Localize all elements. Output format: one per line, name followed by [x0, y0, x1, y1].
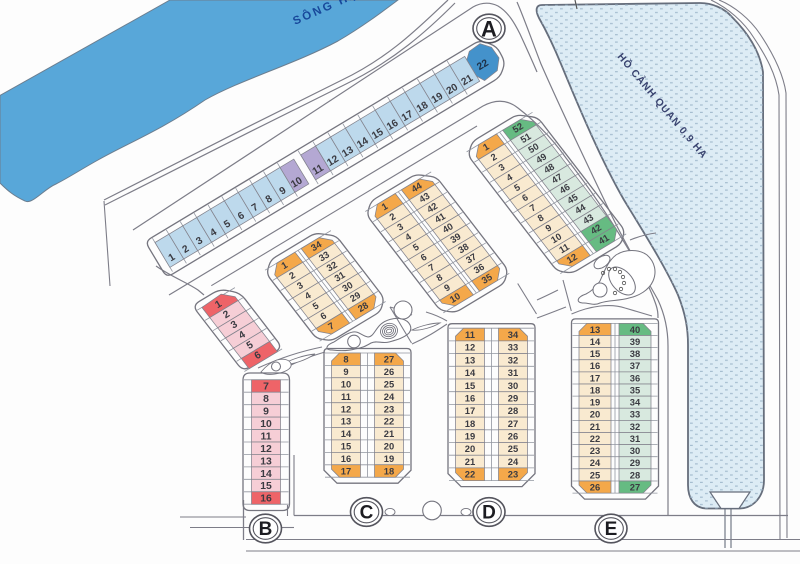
svg-text:29: 29 [630, 457, 640, 468]
svg-text:C: C [360, 503, 374, 524]
svg-text:13: 13 [590, 324, 600, 335]
svg-text:8: 8 [263, 394, 269, 405]
svg-text:26: 26 [384, 366, 394, 377]
svg-text:31: 31 [508, 367, 518, 378]
svg-text:20: 20 [384, 441, 394, 452]
svg-text:18: 18 [465, 418, 475, 429]
svg-text:26: 26 [508, 431, 518, 442]
svg-text:30: 30 [630, 445, 640, 456]
svg-text:27: 27 [384, 354, 394, 365]
svg-text:8: 8 [343, 354, 348, 365]
svg-text:17: 17 [590, 372, 600, 383]
svg-text:39: 39 [630, 336, 640, 347]
svg-text:18: 18 [384, 465, 394, 476]
svg-text:10: 10 [341, 378, 351, 389]
svg-text:13: 13 [465, 354, 475, 365]
svg-text:12: 12 [465, 342, 475, 353]
svg-text:28: 28 [630, 469, 640, 480]
svg-text:38: 38 [630, 348, 640, 359]
svg-text:13: 13 [260, 456, 272, 467]
svg-text:11: 11 [341, 391, 351, 402]
svg-text:17: 17 [465, 405, 475, 416]
svg-text:11: 11 [261, 432, 272, 443]
svg-text:22: 22 [590, 433, 600, 444]
svg-text:22: 22 [465, 469, 475, 480]
svg-text:25: 25 [590, 469, 600, 480]
svg-text:25: 25 [508, 443, 518, 454]
svg-text:40: 40 [630, 324, 640, 335]
svg-text:D: D [482, 503, 496, 524]
svg-text:19: 19 [384, 453, 394, 464]
svg-text:16: 16 [341, 453, 351, 464]
svg-text:16: 16 [465, 392, 475, 403]
svg-text:33: 33 [508, 342, 518, 353]
svg-text:34: 34 [630, 397, 641, 408]
svg-text:21: 21 [590, 421, 600, 432]
svg-text:16: 16 [590, 360, 600, 371]
svg-text:23: 23 [384, 403, 394, 414]
svg-text:16: 16 [260, 494, 272, 505]
svg-text:37: 37 [630, 360, 640, 371]
svg-text:33: 33 [630, 409, 640, 420]
svg-text:14: 14 [590, 336, 601, 347]
svg-text:30: 30 [508, 380, 518, 391]
svg-text:15: 15 [465, 380, 475, 391]
svg-text:12: 12 [341, 403, 351, 414]
svg-text:24: 24 [508, 456, 519, 467]
svg-text:21: 21 [465, 456, 475, 467]
svg-text:E: E [605, 519, 618, 540]
svg-text:14: 14 [260, 469, 272, 480]
svg-text:13: 13 [341, 416, 351, 427]
svg-text:26: 26 [590, 481, 600, 492]
svg-text:15: 15 [590, 348, 600, 359]
svg-text:32: 32 [630, 421, 640, 432]
svg-text:28: 28 [508, 405, 518, 416]
svg-text:24: 24 [590, 457, 601, 468]
svg-text:19: 19 [590, 397, 600, 408]
svg-text:27: 27 [630, 481, 640, 492]
svg-text:22: 22 [384, 416, 394, 427]
svg-text:7: 7 [263, 382, 269, 393]
svg-text:29: 29 [508, 392, 518, 403]
svg-text:10: 10 [260, 419, 272, 430]
svg-text:12: 12 [260, 444, 272, 455]
svg-text:20: 20 [465, 443, 475, 454]
svg-text:23: 23 [590, 445, 600, 456]
svg-text:34: 34 [508, 329, 519, 340]
svg-text:32: 32 [508, 354, 518, 365]
svg-text:36: 36 [630, 372, 640, 383]
svg-text:14: 14 [341, 428, 352, 439]
svg-text:17: 17 [341, 465, 351, 476]
svg-text:A: A [481, 16, 497, 41]
svg-text:35: 35 [630, 385, 640, 396]
svg-text:21: 21 [384, 428, 394, 439]
svg-text:14: 14 [465, 367, 476, 378]
svg-text:25: 25 [384, 378, 394, 389]
svg-text:B: B [259, 519, 273, 540]
svg-text:11: 11 [465, 329, 475, 340]
svg-text:27: 27 [508, 418, 518, 429]
svg-text:24: 24 [384, 391, 395, 402]
svg-text:9: 9 [263, 407, 269, 418]
svg-text:31: 31 [630, 433, 640, 444]
svg-text:23: 23 [508, 469, 518, 480]
svg-text:20: 20 [590, 409, 600, 420]
svg-text:9: 9 [343, 366, 348, 377]
svg-text:18: 18 [590, 385, 600, 396]
svg-text:15: 15 [341, 441, 351, 452]
svg-text:19: 19 [465, 431, 475, 442]
svg-text:15: 15 [260, 481, 272, 492]
